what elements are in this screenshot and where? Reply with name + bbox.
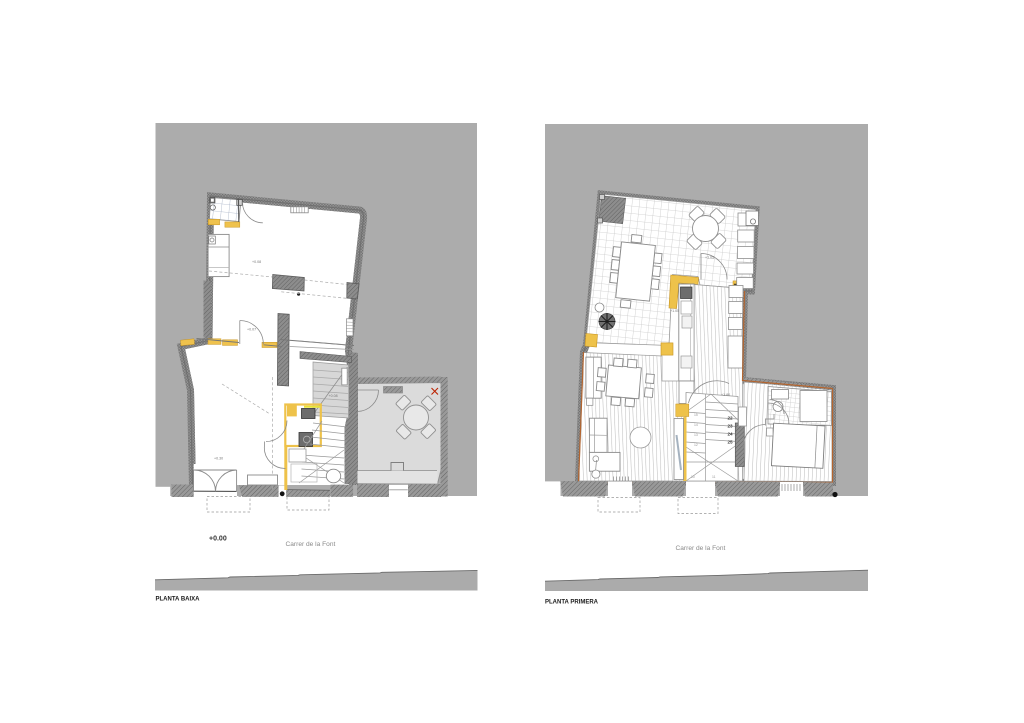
svg-text:23: 23 xyxy=(728,424,734,429)
svg-text:+0.08: +0.08 xyxy=(252,260,261,264)
svg-text:13: 13 xyxy=(694,433,698,437)
svg-text:22: 22 xyxy=(728,416,734,421)
svg-text:25: 25 xyxy=(728,440,734,445)
svg-text:24: 24 xyxy=(728,432,734,437)
svg-text:PLANTA PRIMERA: PLANTA PRIMERA xyxy=(545,600,599,606)
svg-text:PLANTA BAIXA: PLANTA BAIXA xyxy=(156,597,201,603)
svg-text:+1.05: +1.05 xyxy=(670,309,679,313)
svg-text:14: 14 xyxy=(694,423,698,427)
svg-text:15: 15 xyxy=(694,413,698,417)
svg-text:+0.30: +0.30 xyxy=(214,456,223,460)
svg-text:+0.08: +0.08 xyxy=(329,394,338,398)
svg-text:+0.00: +0.00 xyxy=(209,536,227,543)
svg-text:+1.05: +1.05 xyxy=(705,256,714,260)
svg-text:12: 12 xyxy=(694,443,698,447)
svg-text:11: 11 xyxy=(712,475,716,479)
svg-text:+0.07: +0.07 xyxy=(247,328,256,332)
svg-text:Carrer de la Font: Carrer de la Font xyxy=(286,541,336,548)
svg-text:Carrer de la Font: Carrer de la Font xyxy=(676,545,726,552)
svg-text:10: 10 xyxy=(691,475,695,479)
svg-text:+1.80: +1.80 xyxy=(721,393,730,397)
